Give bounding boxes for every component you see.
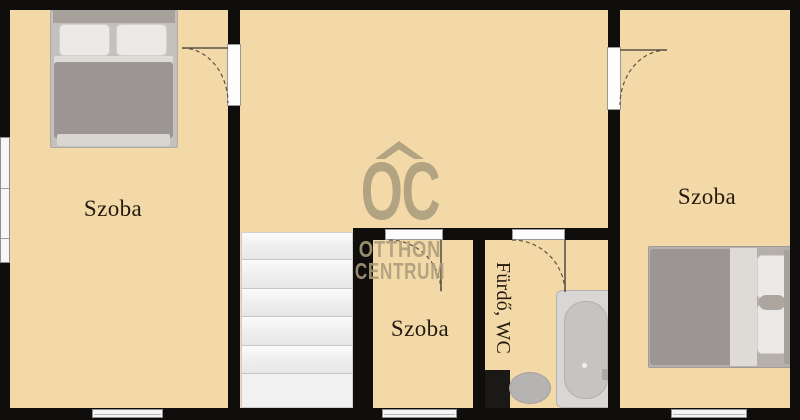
room-label-middle-bottom: Szoba xyxy=(360,316,480,342)
door-arc-left-room xyxy=(182,48,228,103)
door-arc-bathroom xyxy=(512,240,565,293)
room-label-bathroom: Fürdő, WC xyxy=(491,243,515,373)
door-arc-middle-room xyxy=(389,240,441,292)
room-label-left: Szoba xyxy=(53,196,173,222)
floorplan: Szoba Szoba Szoba Fürdő, WC OC OTTHON CE… xyxy=(0,0,800,420)
door-arc-right-room xyxy=(620,50,667,105)
room-label-right: Szoba xyxy=(647,184,767,210)
